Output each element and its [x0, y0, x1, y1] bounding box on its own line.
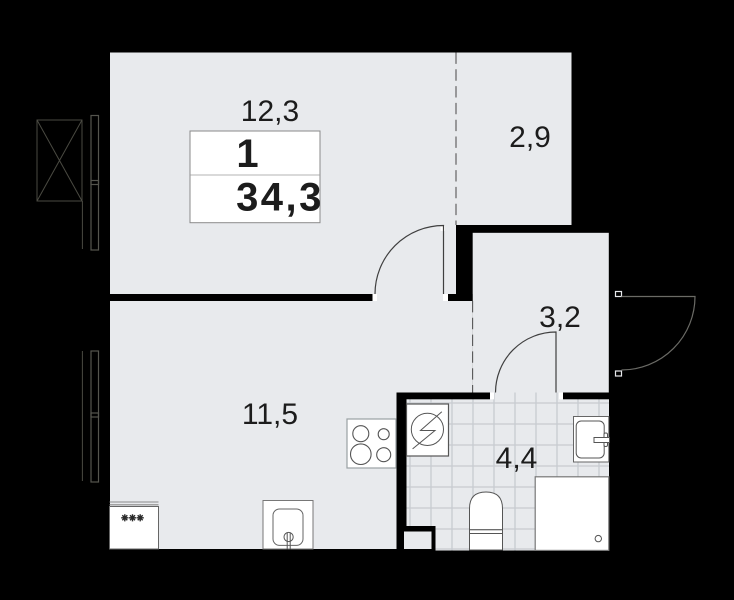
svg-text:12,3: 12,3	[241, 95, 299, 128]
svg-text:3,2: 3,2	[539, 301, 581, 334]
svg-text:4,4: 4,4	[496, 442, 538, 475]
svg-text:2,9: 2,9	[509, 121, 551, 154]
svg-text:11,5: 11,5	[242, 398, 298, 431]
svg-text:1: 1	[236, 132, 258, 176]
svg-text:34,3: 34,3	[236, 176, 324, 220]
